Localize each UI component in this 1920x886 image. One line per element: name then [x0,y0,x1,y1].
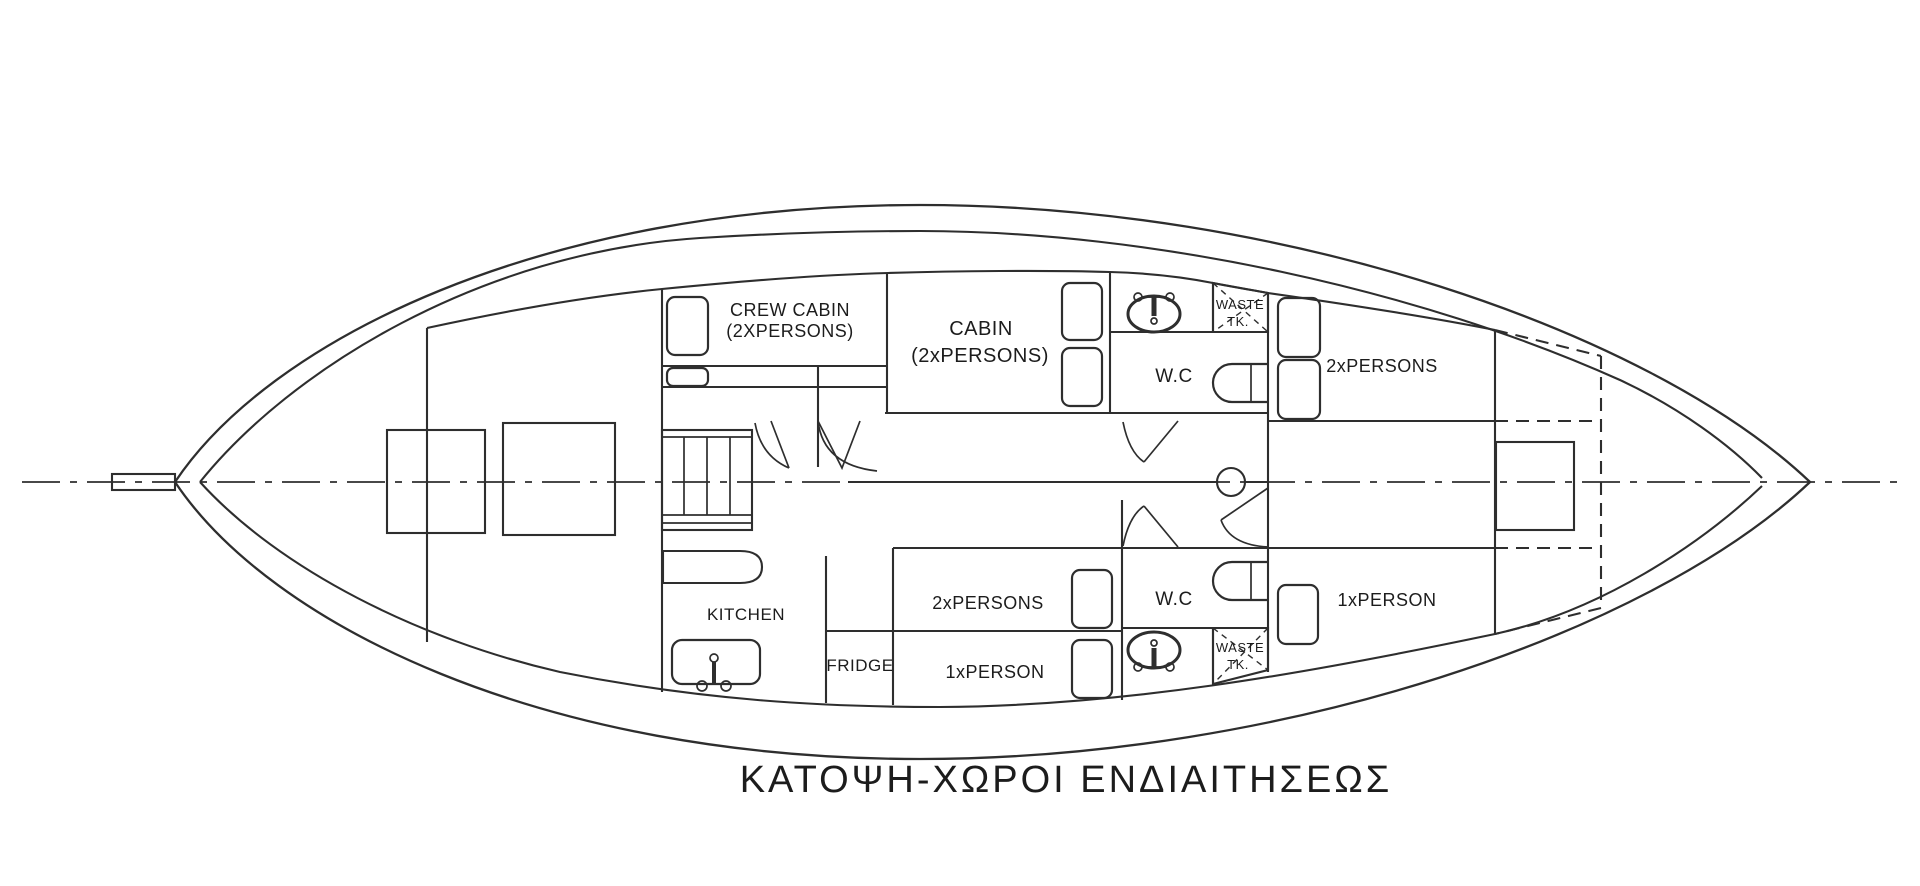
berth-fwd-lower-1p [1278,585,1318,644]
waste-tank-upper-label-line1: WASTE [1216,297,1264,312]
waste-tanks [1213,283,1268,684]
doors [755,421,1268,547]
waste-tank-lower-label-line1: WASTE [1216,640,1264,655]
kitchen-faucet-icon [697,654,731,691]
door-wc-upper [1123,421,1178,462]
cabin-label-line1: CABIN [949,318,1013,340]
kitchen-label: KITCHEN [707,605,785,624]
berth-fwd-2p-2 [1278,360,1320,419]
cabin-label-line2: (2xPERSONS) [911,345,1049,367]
toilet-upper-icon [1213,364,1268,402]
crew-cabin-label-line1: CREW CABIN [730,300,850,320]
deck-plan-page: CREW CABIN (2XPERSONS) CABIN (2xPERSONS)… [0,0,1920,886]
washbasin-upper-icon [1128,293,1180,332]
door-forward-cabin [1221,488,1268,547]
berth-mid-lower-1p [1072,640,1112,698]
door-corridor-aft-left [755,421,789,468]
washbasin-lower-icon [1128,632,1180,671]
crew-cabin-label-line2: (2XPERSONS) [726,321,854,341]
saloon-hatches [387,423,615,535]
hatch-box-mid [503,423,615,535]
waste-tank-lower-label-line2: TK. [1227,657,1249,672]
fridge-label: FRIDGE [826,656,893,675]
forepeak-locker [1496,442,1574,530]
wc-lower-label: W.C [1155,589,1192,610]
drawing-title: ΚΑΤΟΨΗ-ΧΩΡΟΙ ΕΝΔΙΑΙΤΗΣΕΩΣ [740,759,1393,801]
cabin-2p-aft-lower-label: 2xPERSONS [932,593,1044,613]
cabin-1p-mid-lower-label: 1xPERSON [945,662,1044,682]
door-wc-lower [1123,506,1178,547]
cabin-1p-forward-lower-label: 1xPERSON [1337,590,1436,610]
locker-crew-cabin [667,368,708,386]
door-corridor-aft-right [818,421,877,471]
toilet-lower-icon [1213,562,1268,600]
berth-crew-cabin [667,297,708,355]
waste-tank-upper-label-line2: TK. [1227,314,1249,329]
companionway-stairs [662,430,752,530]
berth-cabin-2 [1062,348,1102,406]
cabin-2p-forward-label: 2xPERSONS [1326,356,1438,376]
wc-upper-label: W.C [1155,366,1192,387]
galley-counter [663,551,762,583]
berth-fwd-2p-1 [1278,298,1320,357]
berth-aft-lower-2p [1072,570,1112,628]
berth-cabin-1 [1062,283,1102,340]
waste-tank-lower-box [1213,628,1268,684]
deck-plan-drawing: CREW CABIN (2XPERSONS) CABIN (2xPERSONS)… [0,0,1920,886]
